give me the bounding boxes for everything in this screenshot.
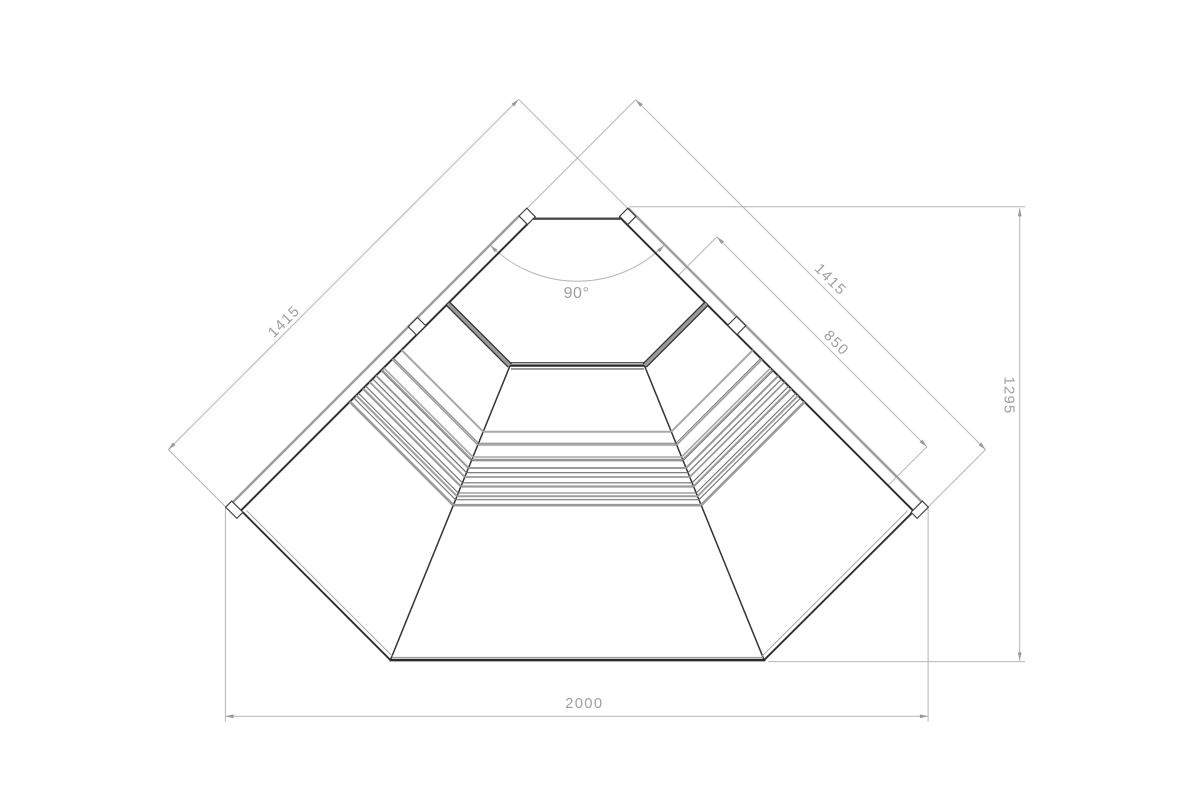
svg-text:2000: 2000 [565, 696, 603, 712]
svg-text:1295: 1295 [1001, 376, 1017, 414]
svg-text:90°: 90° [564, 285, 590, 302]
